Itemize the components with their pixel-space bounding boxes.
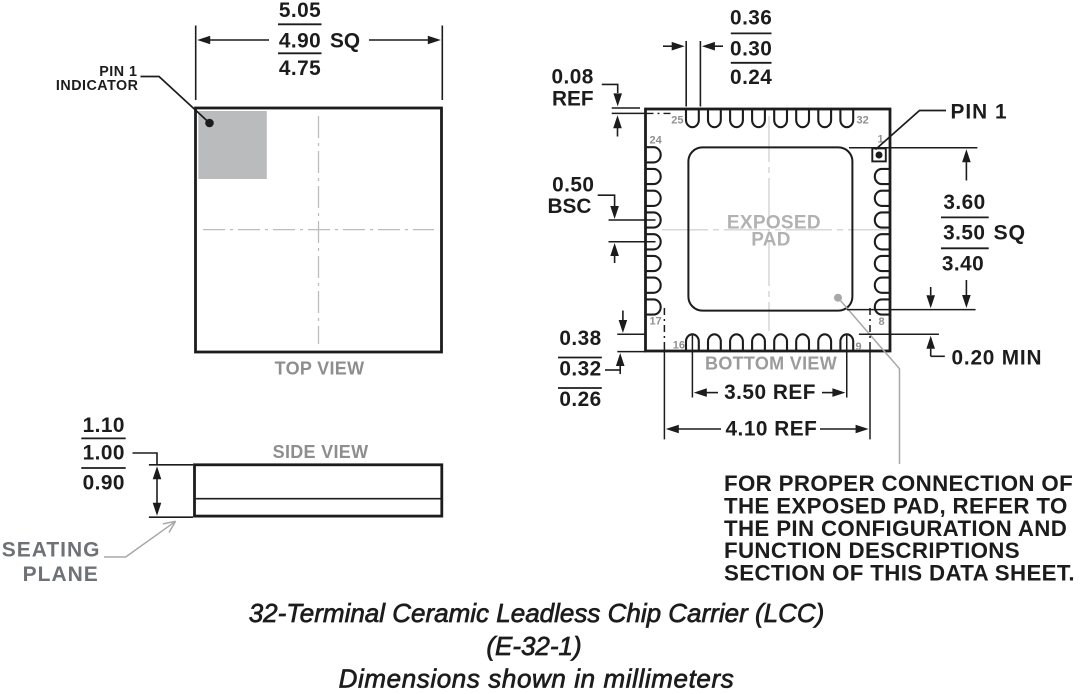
svg-text:3.50 REF: 3.50 REF: [724, 381, 816, 404]
svg-text:0.26: 0.26: [559, 388, 601, 411]
svg-text:Dimensions shown in millimeter: Dimensions shown in millimeters: [339, 664, 735, 694]
svg-text:FOR PROPER CONNECTION OF: FOR PROPER CONNECTION OF: [724, 471, 1073, 496]
svg-text:8: 8: [879, 316, 885, 328]
svg-text:1.00: 1.00: [83, 442, 125, 465]
svg-text:0.30: 0.30: [730, 38, 772, 61]
svg-text:9: 9: [856, 341, 862, 353]
svg-text:REF: REF: [552, 88, 594, 111]
svg-text:3.60: 3.60: [943, 191, 985, 214]
svg-text:5.05: 5.05: [279, 0, 321, 22]
svg-text:0.50: 0.50: [552, 174, 594, 197]
svg-text:4.75: 4.75: [279, 57, 321, 80]
svg-text:TOP VIEW: TOP VIEW: [275, 359, 365, 379]
svg-text:0.38: 0.38: [559, 327, 601, 350]
svg-text:16: 16: [673, 340, 685, 352]
svg-text:25: 25: [671, 115, 683, 127]
svg-text:0.08: 0.08: [551, 65, 593, 88]
svg-text:0.32: 0.32: [559, 357, 601, 380]
svg-text:4.10 REF: 4.10 REF: [725, 417, 817, 440]
svg-text:0.90: 0.90: [83, 472, 125, 495]
svg-text:PLANE: PLANE: [23, 563, 99, 586]
svg-text:PIN 1: PIN 1: [951, 100, 1008, 123]
svg-text:0.36: 0.36: [730, 7, 772, 30]
svg-text:32-Terminal Ceramic Leadless C: 32-Terminal Ceramic Leadless Chip Carrie…: [249, 598, 825, 628]
svg-text:3.40: 3.40: [942, 253, 984, 276]
svg-text:SEATING: SEATING: [2, 539, 101, 562]
svg-text:0.20 MIN: 0.20 MIN: [952, 347, 1043, 370]
svg-text:PAD: PAD: [751, 230, 791, 251]
svg-text:4.90: 4.90: [279, 30, 321, 53]
svg-text:THE PIN CONFIGURATION AND: THE PIN CONFIGURATION AND: [724, 516, 1067, 541]
svg-text:SQ: SQ: [994, 221, 1026, 245]
svg-text:17: 17: [650, 316, 662, 328]
svg-text:(E-32-1): (E-32-1): [486, 631, 581, 661]
svg-text:3.50: 3.50: [943, 222, 985, 245]
svg-text:24: 24: [650, 135, 663, 147]
svg-text:SIDE VIEW: SIDE VIEW: [273, 442, 369, 462]
svg-text:THE EXPOSED PAD, REFER TO: THE EXPOSED PAD, REFER TO: [724, 493, 1068, 518]
svg-text:1.10: 1.10: [83, 414, 125, 437]
svg-text:INDICATOR: INDICATOR: [56, 78, 139, 94]
svg-text:SECTION OF THIS DATA SHEET.: SECTION OF THIS DATA SHEET.: [724, 561, 1075, 586]
svg-text:32: 32: [857, 115, 869, 127]
svg-text:FUNCTION DESCRIPTIONS: FUNCTION DESCRIPTIONS: [724, 538, 1020, 563]
svg-text:0.24: 0.24: [730, 66, 772, 89]
svg-text:BOTTOM VIEW: BOTTOM VIEW: [705, 353, 837, 373]
svg-text:SQ: SQ: [330, 30, 360, 53]
svg-text:BSC: BSC: [548, 195, 592, 218]
